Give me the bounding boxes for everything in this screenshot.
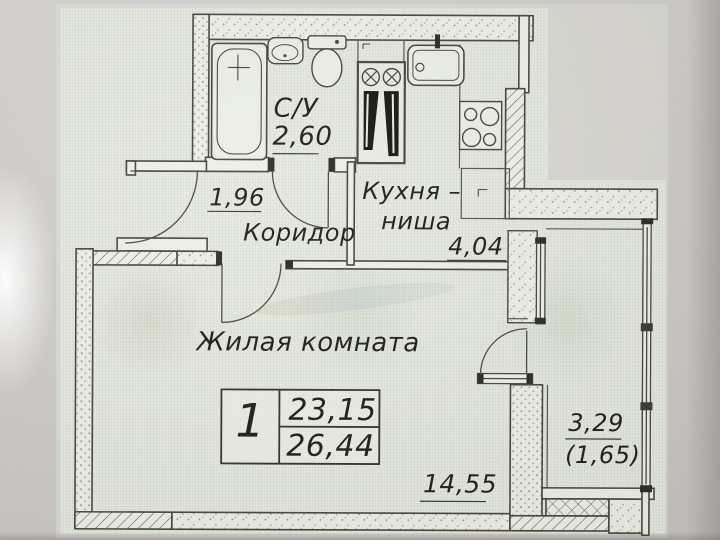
photo-edge-shadow <box>0 532 720 540</box>
photo-flare <box>0 170 54 390</box>
photo-edge-shadow <box>686 0 720 540</box>
floor-plan-photo: С/У 2,60 1,96 Коридор Кухня – ниша 4,04 … <box>0 0 720 540</box>
photo-vignette <box>0 0 720 540</box>
